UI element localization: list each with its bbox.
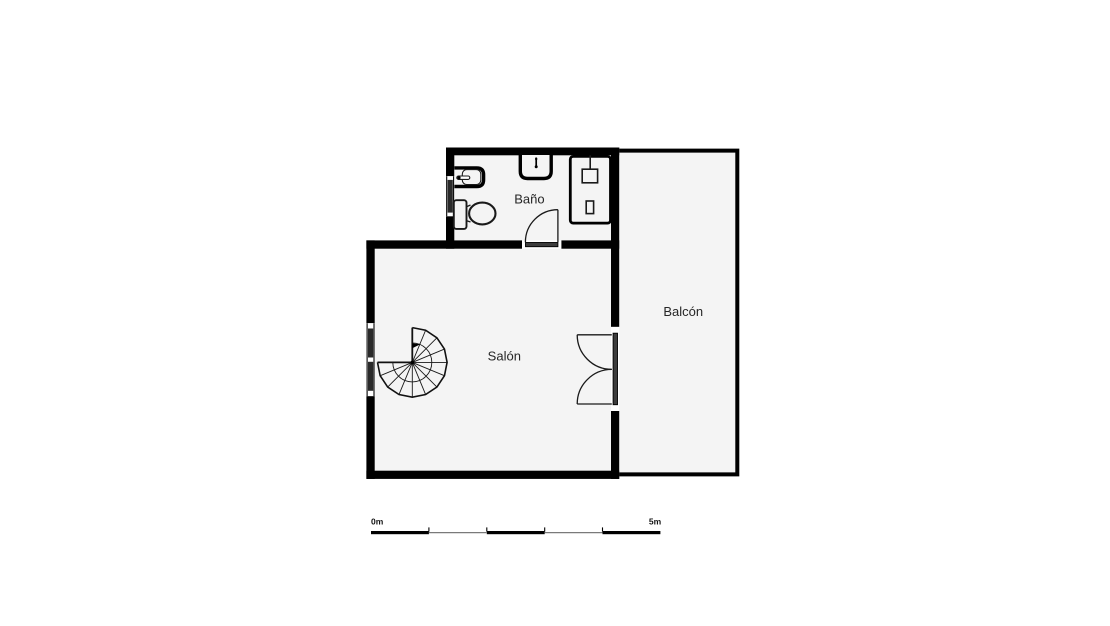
svg-text:Baño: Baño — [514, 192, 544, 207]
svg-text:Balcón: Balcón — [663, 304, 703, 319]
svg-text:5m: 5m — [649, 516, 662, 526]
svg-text:0m: 0m — [371, 516, 384, 526]
svg-text:Salón: Salón — [488, 349, 521, 364]
